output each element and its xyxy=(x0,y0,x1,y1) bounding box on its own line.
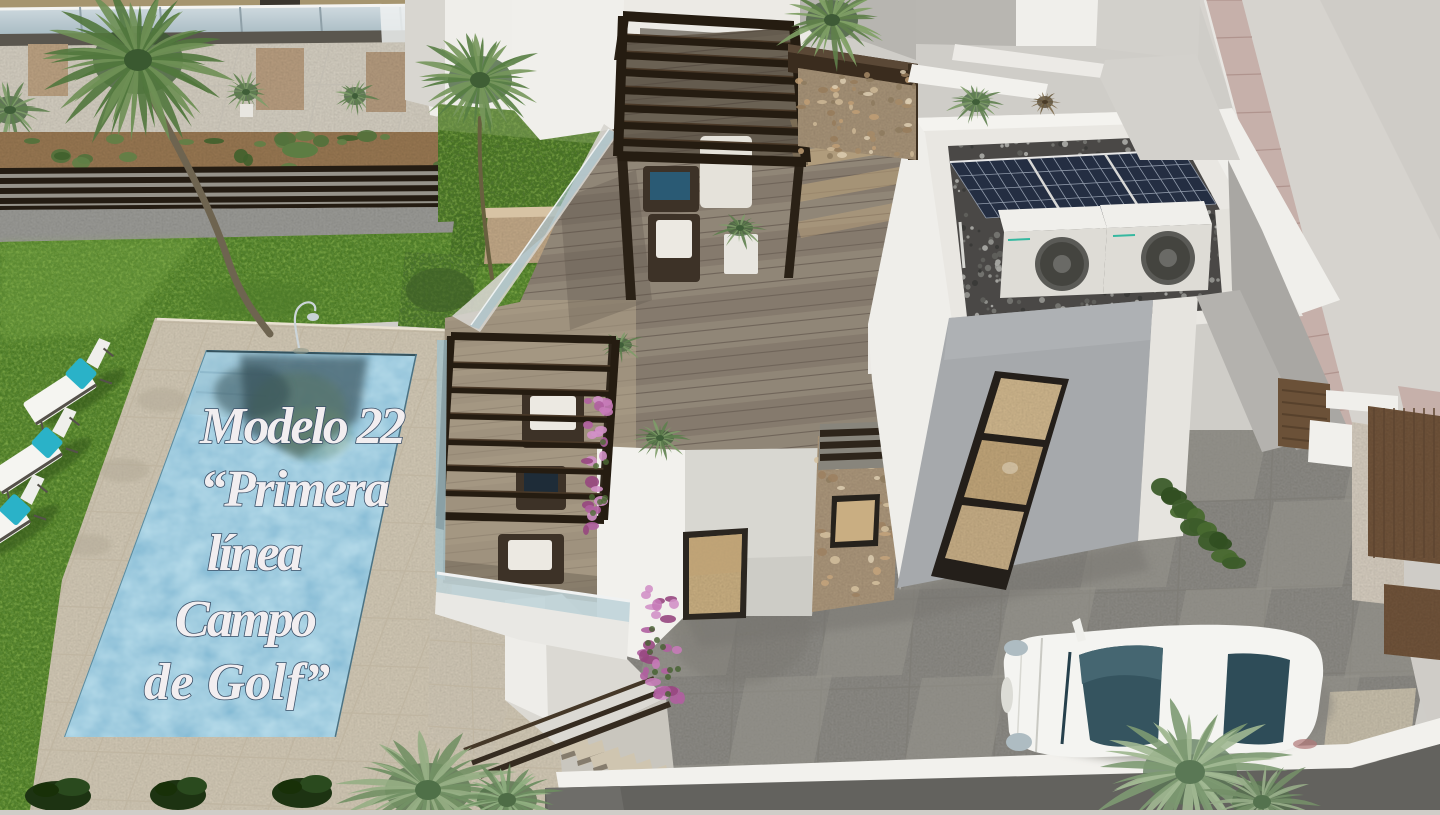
svg-text:“Primera: “Primera xyxy=(200,461,390,518)
svg-text:línea: línea xyxy=(207,525,303,582)
svg-text:Modelo 22: Modelo 22 xyxy=(199,398,406,455)
svg-text:Campo: Campo xyxy=(175,591,317,648)
svg-text:de Golf”: de Golf” xyxy=(144,654,330,711)
